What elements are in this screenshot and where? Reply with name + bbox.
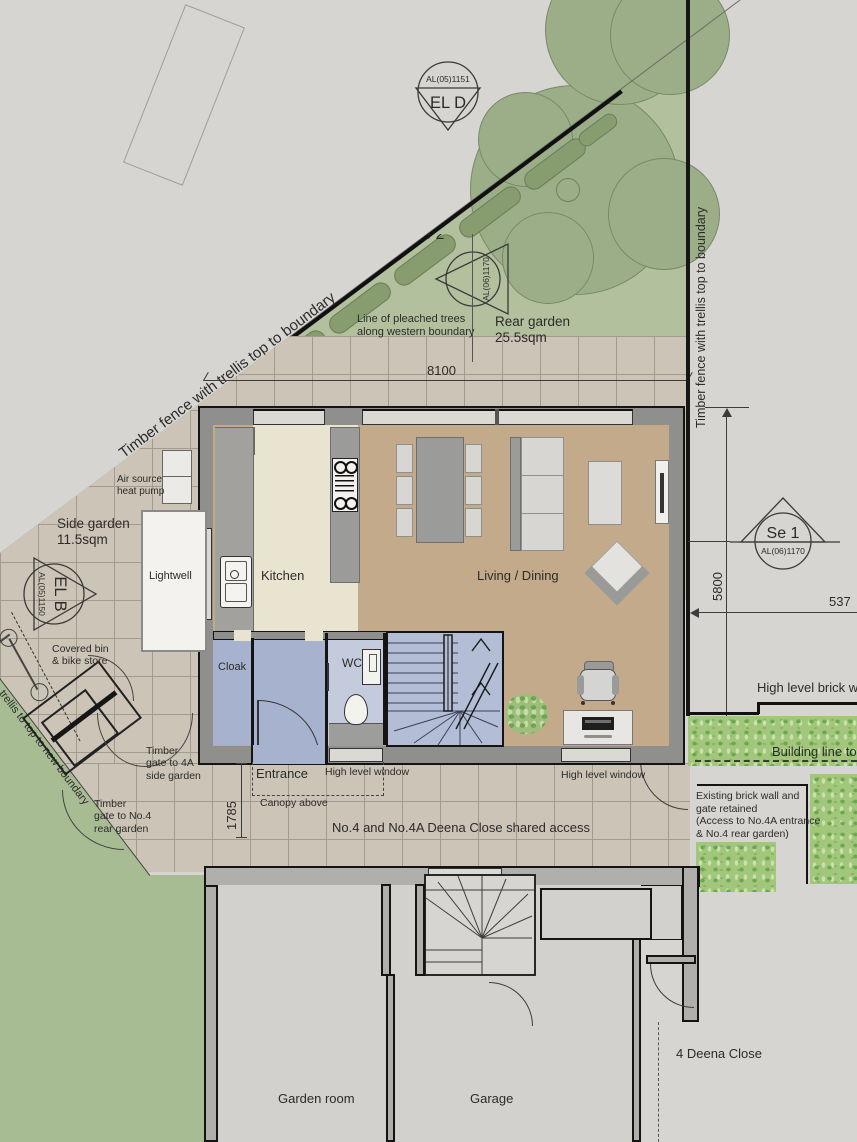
staircase <box>386 631 504 747</box>
high-level-window-1 <box>329 748 383 762</box>
garage-west-wall <box>386 974 395 1142</box>
garden-room-label: Garden room <box>278 1091 355 1106</box>
wc-label: WC <box>342 656 362 670</box>
dim-5800-line <box>726 410 727 762</box>
dining-chair <box>465 444 482 473</box>
dim-537: 537 <box>829 594 851 609</box>
glazing-mullion <box>495 409 499 425</box>
dim-8100: 8100 <box>427 363 456 378</box>
hlw-label-1: High level window <box>325 766 409 778</box>
marker-el-b-code: AL(05)1150 <box>37 572 47 616</box>
dining-table <box>416 437 464 543</box>
no4-west-wall <box>204 885 218 1142</box>
dining-chair <box>465 508 482 537</box>
dim-8100-line <box>204 380 690 381</box>
marker-el-b-label: EL B <box>51 576 69 611</box>
kitchen-window <box>253 409 325 425</box>
tree-trunk <box>556 178 580 202</box>
side-garden-label: Side garden11.5sqm <box>57 516 130 548</box>
brick-wall-label: High level brick w <box>757 680 857 695</box>
address-label: 4 Deena Close <box>676 1046 762 1061</box>
cloak-label: Cloak <box>218 661 246 674</box>
cloak-floor <box>213 638 253 745</box>
dining-chair <box>396 476 413 505</box>
living-label: Living / Dining <box>477 568 559 583</box>
dim-arrow-left <box>690 608 699 618</box>
dining-chair <box>465 476 482 505</box>
sofa <box>521 437 564 551</box>
marker-el-d-code: AL(05)1151 <box>426 74 470 84</box>
sofa-back <box>510 437 521 551</box>
no4-shelf <box>646 955 696 964</box>
coffee-table <box>588 461 622 525</box>
gate-no4-label: Timbergate to No.4rear garden <box>94 798 151 835</box>
dim-arrow-up <box>722 408 732 417</box>
marker-se-1-code: AL(06)1170 <box>761 546 805 556</box>
marker-se-1: Se 1 AL(06)1170 <box>728 488 844 574</box>
tall-unit <box>655 460 669 524</box>
high-level-window-2 <box>561 748 631 762</box>
desk <box>563 710 633 745</box>
kitchen-sink <box>220 556 252 608</box>
dining-chair <box>396 508 413 537</box>
wc-boxing <box>329 723 383 746</box>
brick-wall-line <box>757 702 857 705</box>
boundary-dashed <box>658 1022 659 1142</box>
existing-wall-label: Existing brick wall andgate retained (Ac… <box>696 790 820 840</box>
toilet <box>344 694 368 725</box>
kitchen-label: Kitchen <box>261 568 304 583</box>
wc-door-leaf <box>327 663 329 691</box>
no4-staircase <box>424 874 536 976</box>
desk-chair <box>577 661 619 705</box>
hlw-label-2: High level window <box>561 769 645 781</box>
marker-el-b: EL B AL(05)1150 <box>10 548 106 640</box>
canopy-label: Canopy above <box>260 797 328 809</box>
plant <box>506 694 548 734</box>
gate-4a-label: Timbergate to 4Aside garden <box>146 745 201 782</box>
door-opening <box>234 630 251 641</box>
se1-leader <box>688 541 730 542</box>
dim-1785-line <box>241 764 242 838</box>
hob <box>332 458 358 512</box>
dim-tick <box>236 763 247 764</box>
heat-pump-label: Air sourceheat pump <box>117 474 164 498</box>
dim-5800: 5800 <box>710 572 725 601</box>
dim-1785: 1785 <box>224 801 239 830</box>
dining-chair <box>396 444 413 473</box>
site-plan: Timber fence with trellis top to boundar… <box>0 0 857 1142</box>
building-line-dash <box>695 760 857 762</box>
parking-bay-outline <box>123 4 245 186</box>
garage-bay <box>540 888 652 940</box>
garage-label: Garage <box>470 1091 513 1106</box>
basin <box>362 649 381 685</box>
marker-el-d-label: EL D <box>430 94 466 112</box>
door-opening <box>305 630 323 641</box>
brick-wall-line <box>688 712 759 715</box>
marker-se-2-label: Se 2 <box>428 234 445 243</box>
shared-access-label: No.4 and No.4A Deena Close shared access <box>332 820 590 835</box>
partition <box>325 633 328 763</box>
dim-tick <box>236 837 247 838</box>
heat-pump <box>162 450 192 504</box>
no4-pier <box>381 884 391 976</box>
lightwell-label: Lightwell <box>149 570 192 583</box>
building-line-label: Building line to <box>772 744 857 759</box>
existing-wall-line <box>697 784 808 786</box>
garage-east-wall <box>632 938 641 1142</box>
planting-patch <box>696 842 776 892</box>
no4-side-door-arc <box>650 964 694 1008</box>
marker-se-2: Se 2 AL(06)1170 <box>428 234 520 326</box>
entrance-label: Entrance <box>256 766 308 781</box>
section-line <box>472 234 473 362</box>
marker-se-1-label: Se 1 <box>767 525 800 542</box>
dim-537-line <box>693 612 857 613</box>
fence-east-label: Timber fence with trellis top to boundar… <box>694 207 709 428</box>
marker-el-d: AL(05)1151 EL D <box>403 46 495 134</box>
marker-se-2-code: AL(06)1170 <box>481 257 491 301</box>
